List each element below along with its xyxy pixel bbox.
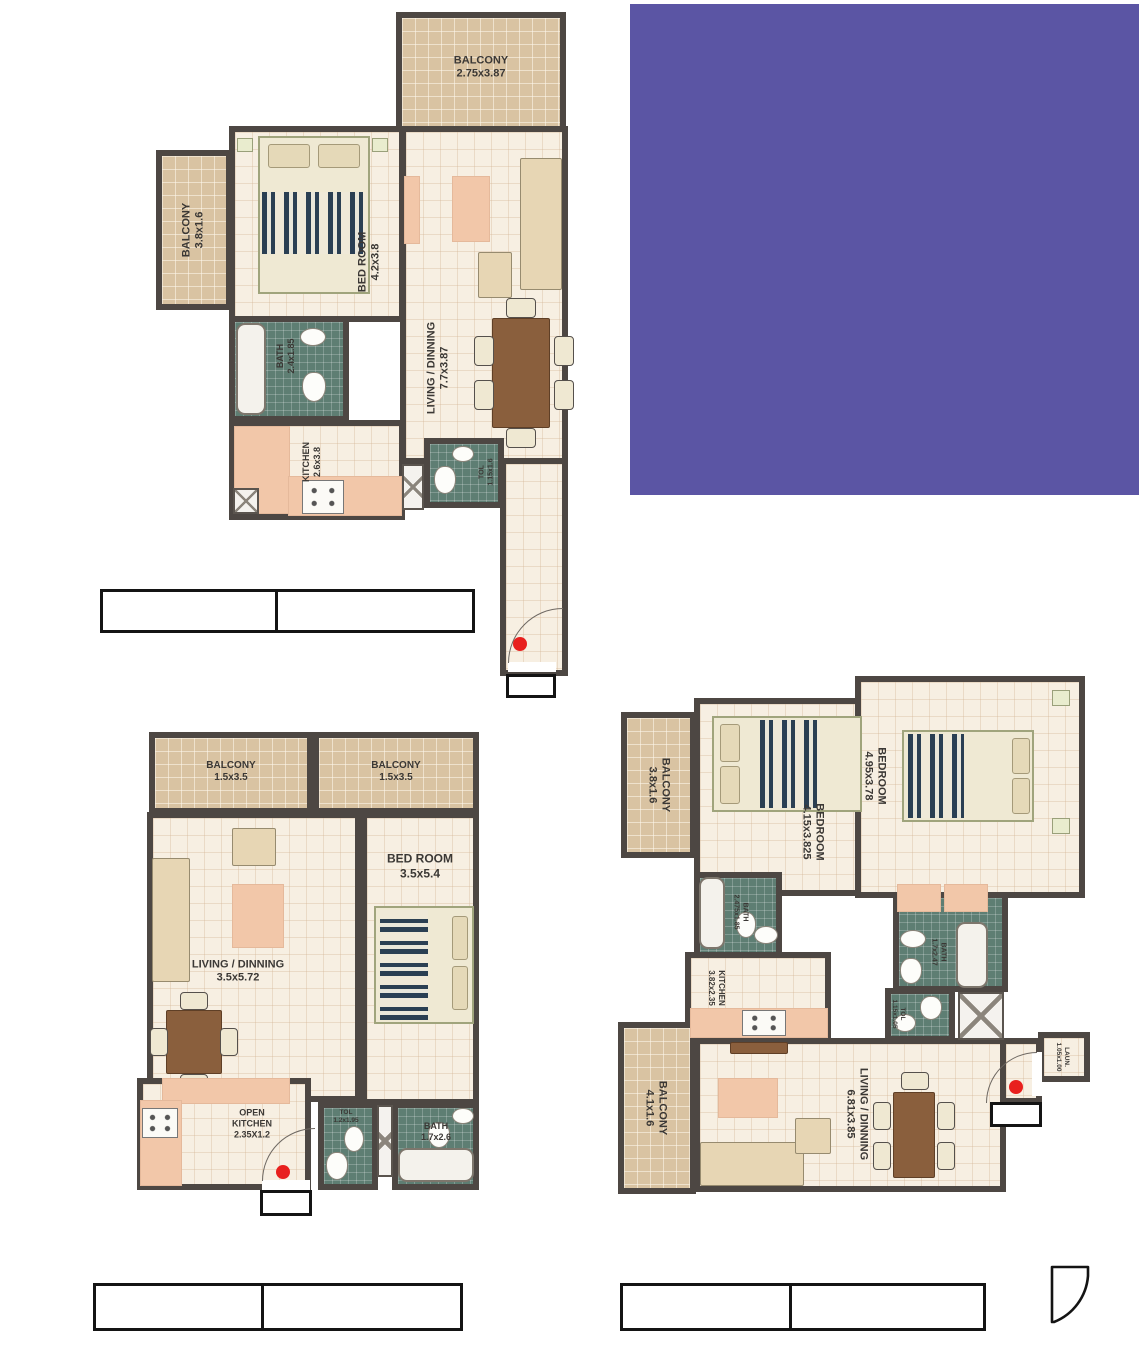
room-label: LIVING / DINNING 7.7x3.87	[426, 322, 453, 414]
room-label: TOL 1.15x1.6	[478, 458, 495, 485]
stove-icon	[742, 1010, 786, 1036]
room-name: TOL	[898, 1000, 906, 1029]
chair-icon	[554, 336, 574, 366]
unit-number-box	[990, 1102, 1042, 1127]
chair-icon	[901, 1072, 929, 1090]
room-label: BEDROOM 4.15x3.825	[799, 803, 826, 860]
room-label: BALCONY 3.8x1.6	[181, 203, 208, 257]
coffee-table-icon	[232, 884, 284, 948]
bed-icon	[902, 730, 1034, 822]
chair-icon	[873, 1142, 891, 1170]
stove-icon	[302, 480, 344, 514]
floor-plan-sheet: BALCONY 2.75x3.87 BALCONY 3.8x1.6 BED RO…	[0, 0, 1139, 1361]
room-label: BEDROOM 4.95x3.78	[861, 747, 888, 804]
room-dims: 3.8x1.6	[645, 758, 658, 812]
door-opening	[508, 662, 556, 672]
room-name: LAUN.	[1062, 1043, 1070, 1072]
chair-icon	[506, 428, 536, 448]
room-dims: 1.05x1.00	[1054, 1043, 1062, 1072]
room-name: LIVING / DINNING	[426, 322, 439, 414]
room-dims: 1.5x3.5	[206, 772, 255, 784]
room-name: KITCHEN	[716, 970, 726, 1006]
bathtub-icon	[236, 323, 266, 415]
room-label: KITCHEN 2.6x3.8	[301, 442, 323, 482]
toilet-icon	[920, 996, 942, 1020]
closet-icon	[233, 488, 259, 514]
room-dims: 1.15x1.05	[890, 1000, 898, 1029]
title-cell	[261, 1286, 460, 1328]
blanket-icon	[760, 720, 820, 808]
nightstand-icon	[237, 138, 253, 152]
room-dims: 3.5x5.4	[374, 866, 466, 881]
pillow-icon	[1012, 738, 1030, 774]
nightstand-icon	[372, 138, 388, 152]
room-name: BATH	[275, 338, 286, 373]
sink-icon	[344, 1126, 364, 1152]
title-cell	[103, 592, 275, 630]
tv-icon	[730, 1042, 788, 1054]
title-cell	[275, 592, 472, 630]
sink-icon	[300, 328, 326, 346]
bed-icon	[258, 136, 370, 294]
room-dims: 3.8x1.6	[194, 203, 207, 257]
wardrobe-icon	[897, 884, 941, 912]
pillow-icon	[318, 144, 360, 168]
tv-unit-icon	[404, 176, 420, 244]
closet-icon	[402, 464, 424, 510]
room-label: BATH 1.7x2.6	[421, 1121, 451, 1143]
room-label: LAUN. 1.05x1.00	[1054, 1043, 1070, 1072]
nightstand-icon	[1052, 690, 1070, 706]
dining-table-icon	[492, 318, 550, 428]
room-name: BATH	[421, 1121, 451, 1132]
room-name: OPEN KITCHEN	[221, 1108, 283, 1130]
room-label: TOL 1.2x1.95	[333, 1109, 358, 1125]
plan3-title-box	[620, 1283, 986, 1331]
door-leaf-symbol-icon	[1042, 1262, 1094, 1326]
bathtub-icon	[699, 877, 725, 949]
room-label: LIVING / DINNING 6.81x3.85	[843, 1068, 870, 1160]
armchair-icon	[795, 1118, 831, 1154]
room-dims: 2.6x3.8	[312, 442, 323, 482]
blanket-icon	[380, 910, 428, 1020]
entry-dot	[513, 637, 527, 651]
room-name: BATH	[740, 894, 749, 929]
room-name: BED ROOM	[374, 851, 466, 866]
room-name: BALCONY	[655, 1081, 668, 1135]
room-label: TOL 1.15x1.05	[890, 1000, 906, 1029]
room-label: BATH 2.4x1.85	[275, 338, 297, 373]
pillow-icon	[720, 766, 740, 804]
entry-dot	[276, 1165, 290, 1179]
room-dims: 2.75x3.87	[454, 68, 508, 81]
room-name: LIVING / DINNING	[173, 959, 303, 972]
room-dims: 2.4x1.85	[286, 338, 297, 373]
title-cell	[789, 1286, 983, 1328]
chair-icon	[220, 1028, 238, 1056]
room-name: BALCONY	[454, 55, 508, 68]
blanket-icon	[908, 734, 964, 818]
toilet-icon	[900, 958, 922, 984]
closet-icon	[958, 992, 1004, 1040]
pillow-icon	[452, 966, 468, 1010]
blanket-icon	[262, 192, 366, 254]
pillow-icon	[1012, 778, 1030, 814]
room-label: KITCHEN 3.82x2.35	[706, 970, 726, 1006]
room-label: BALCONY 3.8x1.6	[645, 758, 672, 812]
chair-icon	[937, 1142, 955, 1170]
wardrobe-icon	[944, 884, 988, 912]
pillow-icon	[452, 916, 468, 960]
room-name: BALCONY	[206, 760, 255, 772]
dining-table-icon	[166, 1010, 222, 1074]
room-label: BED ROOM 3.5x5.4	[374, 851, 466, 880]
title-cell	[96, 1286, 261, 1328]
sofa-icon	[520, 158, 562, 290]
room-dims: 4.95x3.78	[861, 747, 874, 804]
chair-icon	[873, 1102, 891, 1130]
chair-icon	[506, 298, 536, 318]
room-dims: 7.7x3.87	[439, 322, 452, 414]
room-dims: 4.2x3.8	[370, 232, 383, 293]
pillow-icon	[268, 144, 310, 168]
room-label: OPEN KITCHEN 2.35X1.2	[221, 1108, 283, 1141]
coffee-table-icon	[452, 176, 490, 242]
bathtub-icon	[956, 922, 988, 988]
sink-icon	[452, 1108, 474, 1124]
room-label: BALCONY 1.5x3.5	[206, 760, 255, 784]
chair-icon	[474, 336, 494, 366]
room-dims: 1.2x1.95	[333, 1117, 358, 1125]
chair-icon	[554, 380, 574, 410]
bed-icon	[712, 716, 862, 812]
room-dims: 1.7x2.47	[929, 938, 938, 965]
entry-dot	[1009, 1080, 1023, 1094]
room-dims: 1.7x2.6	[421, 1132, 451, 1143]
room-dims: 3.82x2.35	[706, 970, 716, 1006]
toilet-icon	[326, 1152, 348, 1180]
room-label: BED ROOM 4.2x3.8	[357, 232, 384, 293]
room-name: LIVING / DINNING	[856, 1068, 869, 1160]
room-name: BATH	[938, 938, 947, 965]
dining-table-icon	[893, 1092, 935, 1178]
room-dims: 4.1x1.6	[642, 1081, 655, 1135]
unit-number-box	[260, 1190, 312, 1216]
sink-icon	[754, 926, 778, 944]
room-dims: 6.81x3.85	[843, 1068, 856, 1160]
room-label: BATH 1.7x2.47	[929, 938, 946, 965]
sink-icon	[900, 930, 926, 948]
room-name: BED ROOM	[357, 232, 370, 293]
room-name: TOL	[478, 458, 487, 485]
room-label: BALCONY 2.75x3.87	[454, 55, 508, 82]
room-name: BALCONY	[181, 203, 194, 257]
pillow-icon	[720, 724, 740, 762]
room-dims: 2.475x1.85	[731, 894, 740, 929]
room-label: BALCONY 1.5x3.5	[371, 760, 420, 784]
title-cell	[623, 1286, 789, 1328]
armchair-icon	[478, 252, 512, 298]
room-label: BALCONY 4.1x1.6	[642, 1081, 669, 1135]
stove-icon	[142, 1108, 178, 1138]
room-name: BALCONY	[658, 758, 671, 812]
chair-icon	[474, 380, 494, 410]
room-name: KITCHEN	[301, 442, 312, 482]
chair-icon	[150, 1028, 168, 1056]
chair-icon	[180, 992, 208, 1010]
room-dims: 1.5x3.5	[371, 772, 420, 784]
closet-icon	[377, 1105, 393, 1177]
coffee-table-icon	[718, 1078, 778, 1118]
room-name: BEDROOM	[874, 747, 887, 804]
room-dims: 4.15x3.825	[799, 803, 812, 860]
purple-color-block	[630, 4, 1139, 495]
plan2-title-box	[93, 1283, 463, 1331]
door-opening	[262, 1180, 310, 1190]
room-dims: 1.15x1.6	[487, 458, 496, 485]
room-name: BEDROOM	[812, 803, 825, 860]
room-name: TOL	[333, 1109, 358, 1117]
sink-icon	[452, 446, 474, 462]
toilet-icon	[302, 372, 326, 402]
sofa-icon	[700, 1142, 804, 1186]
nightstand-icon	[1052, 818, 1070, 834]
plan1-title-box	[100, 589, 475, 633]
unit-number-box	[506, 674, 556, 698]
armchair-icon	[232, 828, 276, 866]
room-label: BATH 2.475x1.85	[731, 894, 748, 929]
chair-icon	[937, 1102, 955, 1130]
bed-icon	[374, 906, 474, 1024]
toilet-icon	[434, 466, 456, 494]
bathtub-icon	[398, 1148, 474, 1182]
room-dims: 2.35X1.2	[221, 1129, 283, 1140]
room-label: LIVING / DINNING 3.5x5.72	[173, 959, 303, 986]
room-name: BALCONY	[371, 760, 420, 772]
room-dims: 3.5x5.72	[173, 972, 303, 985]
